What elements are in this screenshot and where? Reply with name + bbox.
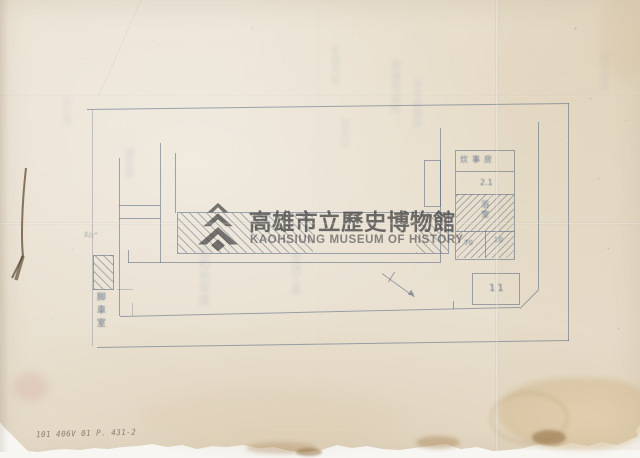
- inner-wall-right-line: [538, 122, 539, 289]
- room-label: 2.1: [480, 179, 493, 188]
- room-table: 炊事房 2.1 浴室 70 10: [455, 150, 515, 260]
- garage-label: 11: [489, 283, 506, 294]
- left-partition-line-1: [119, 158, 120, 316]
- museum-watermark: 高雄市立歷史博物館 KAOHSIUNG MUSEUM OF HISTORY: [178, 198, 454, 258]
- museum-logo-icon: [192, 201, 244, 255]
- watermark-title-en: KAOHSIUNG MUSEUM OF HISTORY: [250, 234, 464, 246]
- room-table-row-1: 炊事房: [456, 151, 514, 172]
- left-partition-line-2: [160, 143, 161, 263]
- room-label: 炊事房: [460, 156, 496, 165]
- step-detail-line-h: [117, 289, 133, 290]
- watermark-title-zh: 高雄市立歷史博物館: [249, 205, 456, 237]
- room-label: 10: [494, 237, 503, 245]
- dimension-tick: [453, 301, 454, 309]
- left-partition-line-3: [175, 153, 176, 213]
- binding-string: [6, 158, 46, 290]
- row-4-divider: [485, 231, 486, 258]
- room-label: 70: [464, 240, 473, 248]
- mid-connector-line: [128, 250, 129, 263]
- room-table-row-4: 70 10: [456, 231, 514, 258]
- bicycle-room-box: [93, 255, 114, 290]
- scanned-document: 年度市有 高雄市役所 保存書類綴 昭和拾年度 營繕工事 圖面綴 建物臺帳 設計書…: [0, 0, 640, 458]
- outer-wall-right-line: [568, 103, 569, 341]
- room-label: 浴室: [480, 200, 489, 220]
- foxing-speckles: [0, 0, 1, 1]
- mid-horizontal-line: [128, 262, 440, 263]
- outer-wall-left-line: [92, 110, 93, 346]
- stair-bar-line-1: [119, 205, 160, 206]
- bicycle-room-label: 脚車室: [94, 292, 104, 340]
- room-table-row-2: 2.1: [456, 171, 514, 195]
- stair-bar-line-2: [119, 218, 160, 219]
- step-detail-line-v: [132, 303, 133, 316]
- garage-box: 11: [472, 273, 520, 305]
- room-table-row-3: 浴室: [456, 194, 514, 232]
- left-scribble: 2△∽: [84, 230, 99, 239]
